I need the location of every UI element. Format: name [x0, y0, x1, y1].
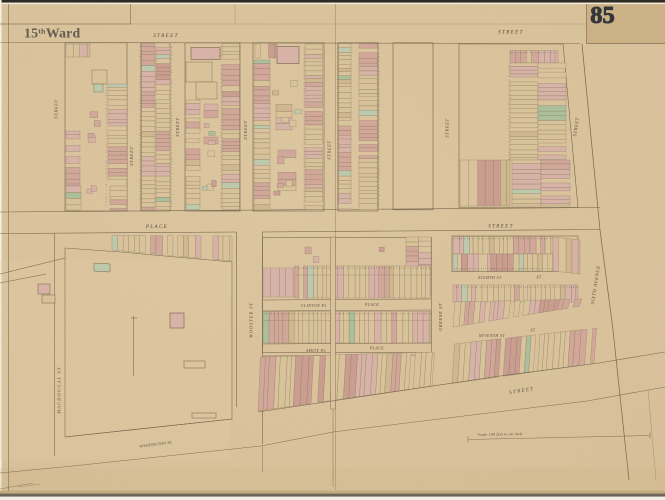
- svg-text:PLACE: PLACE: [369, 347, 384, 351]
- svg-text:15thWard: 15thWard: [24, 26, 81, 41]
- svg-text:CLINTON PL: CLINTON PL: [301, 304, 327, 308]
- svg-text:SEVENTH ST: SEVENTH ST: [479, 334, 506, 338]
- svg-text:STREET: STREET: [129, 146, 134, 165]
- svg-text:STREET: STREET: [498, 31, 524, 36]
- svg-text:STREET: STREET: [153, 34, 179, 39]
- svg-text:GREENE ST: GREENE ST: [438, 303, 443, 331]
- svg-text:MACDOUGAL ST: MACDOUGAL ST: [57, 366, 62, 414]
- svg-text:STREET: STREET: [327, 140, 332, 159]
- svg-text:EIGHTH ST: EIGHTH ST: [477, 276, 502, 280]
- svg-text:STREET: STREET: [488, 225, 514, 230]
- svg-text:STREET: STREET: [54, 99, 59, 118]
- svg-text:ST: ST: [530, 329, 535, 333]
- svg-text:STREET: STREET: [243, 120, 248, 139]
- svg-text:85: 85: [590, 2, 615, 29]
- svg-text:STREET: STREET: [445, 118, 450, 137]
- svg-text:PLACE: PLACE: [364, 303, 379, 307]
- svg-text:WOOSTER ST: WOOSTER ST: [249, 302, 254, 338]
- svg-text:Scale 100 feet to an inch: Scale 100 feet to an inch: [478, 431, 523, 437]
- svg-text:AMITY PL: AMITY PL: [305, 349, 326, 353]
- svg-text:PLACE: PLACE: [145, 225, 168, 230]
- svg-text:ST: ST: [536, 276, 541, 280]
- svg-text:STREET: STREET: [175, 117, 180, 136]
